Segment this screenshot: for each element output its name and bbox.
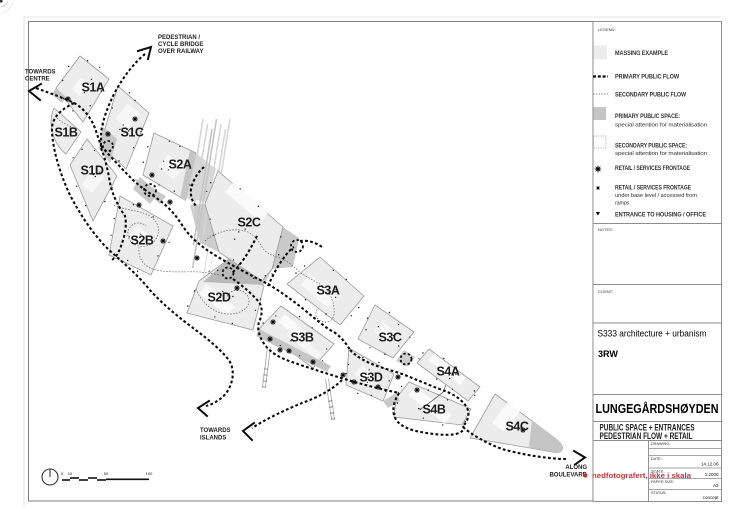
svg-text:S333 architecture + urbanism: S333 architecture + urbanism [598,329,707,339]
svg-text:S4A: S4A [436,365,459,379]
svg-text:NOTES:: NOTES: [598,227,613,232]
svg-text:PRIMARY PUBLIC SPACE:: PRIMARY PUBLIC SPACE: [615,114,680,120]
svg-text:50: 50 [104,471,109,476]
svg-text:S1C: S1C [120,126,143,140]
svg-text:ramps: ramps [615,201,630,207]
svg-text:CLIENT:: CLIENT: [598,289,613,294]
svg-text:S3C: S3C [378,331,401,345]
svg-text:S3B: S3B [290,331,313,345]
svg-text:LEGEND:: LEGEND: [598,27,616,32]
svg-text:S1A: S1A [81,81,104,95]
svg-text:nedfotografert, ikke i skala: nedfotografert, ikke i skala [592,471,692,480]
svg-text:PEDESTRIAN FLOW + RETAIL: PEDESTRIAN FLOW + RETAIL [600,431,693,441]
svg-text:S3A: S3A [316,284,339,298]
svg-text:S1D: S1D [80,164,103,178]
svg-text:SECONDARY PUBLIC FLOW: SECONDARY PUBLIC FLOW [615,93,686,99]
svg-text:concept: concept [703,495,720,500]
svg-text:TOWARDS: TOWARDS [200,428,231,434]
svg-text:special attention for material: special attention for materialisation [615,151,707,157]
svg-text:14.12.06: 14.12.06 [701,462,719,467]
svg-text:special attention for material: special attention for materialisation [615,123,707,129]
svg-text:A3: A3 [713,483,719,488]
svg-text:BOULEVARD: BOULEVARD [549,473,587,479]
svg-text:SECONDARY PUBLIC SPACE:: SECONDARY PUBLIC SPACE: [615,144,687,150]
svg-text:CYCLE BRIDGE: CYCLE BRIDGE [158,42,203,48]
svg-text:DATE:: DATE: [651,457,662,461]
svg-text:S1B: S1B [54,126,77,140]
svg-text:S4C: S4C [505,420,528,434]
svg-text:S2A: S2A [168,158,191,172]
svg-text:TOWARDS: TOWARDS [25,70,56,76]
svg-text:3RW: 3RW [598,349,618,359]
svg-text:PAPER SIZE:: PAPER SIZE: [651,480,674,484]
svg-text:S4B: S4B [422,403,445,417]
svg-text:1:2000: 1:2000 [705,472,719,477]
svg-text:S2D: S2D [207,291,230,305]
svg-text:S3D: S3D [359,371,382,385]
svg-text:LUNGEGÅRDSHØYDEN: LUNGEGÅRDSHØYDEN [596,401,719,416]
svg-text:STATUS:: STATUS: [651,491,666,495]
svg-text:ISLANDS: ISLANDS [200,436,226,442]
svg-text:PEDESTRIAN /: PEDESTRIAN / [158,35,200,41]
svg-text:S2C: S2C [237,216,260,230]
svg-text:ALONG: ALONG [565,465,587,471]
svg-text:CENTRE: CENTRE [25,77,50,83]
svg-text:MASSING EXAMPLE: MASSING EXAMPLE [615,51,668,57]
svg-text:DRAWING:: DRAWING: [651,442,670,446]
svg-text:100: 100 [146,471,153,476]
svg-text:S2B: S2B [130,234,153,248]
svg-text:PRIMARY PUBLIC FLOW: PRIMARY PUBLIC FLOW [615,75,679,81]
svg-text:10: 10 [68,471,73,476]
svg-text:OVER RAILWAY: OVER RAILWAY [158,49,203,55]
svg-text:RETAIL / SERVICES FRONTAGE: RETAIL / SERVICES FRONTAGE [615,186,691,192]
svg-text:RETAIL / SERVICES FRONTAGE: RETAIL / SERVICES FRONTAGE [615,166,690,172]
svg-text:under base level / accessed fr: under base level / accessed from [615,193,698,199]
svg-text:ENTRANCE TO HOUSING / OFFICE: ENTRANCE TO HOUSING / OFFICE [615,213,706,219]
